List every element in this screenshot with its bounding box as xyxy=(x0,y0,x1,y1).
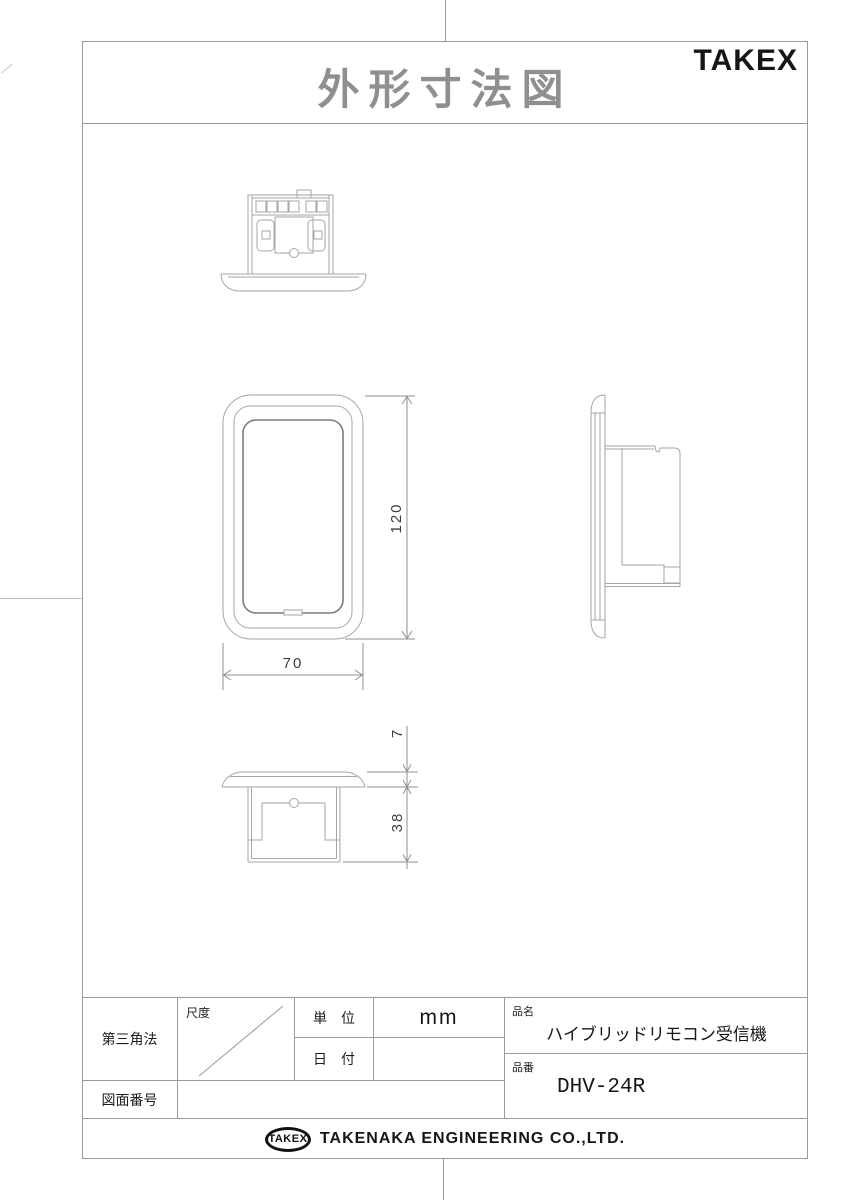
dimension-height: 120 xyxy=(345,396,415,639)
footer-band: TAKEX TAKENAKA ENGINEERING CO.,LTD. xyxy=(82,1118,808,1159)
part-no-cell: 品番 DHV-24R xyxy=(505,1054,808,1119)
product-name-cell: 品名 ハイブリッドリモコン受信機 xyxy=(505,998,808,1054)
dimension-depths: 7 38 xyxy=(343,726,418,869)
terminal-strip xyxy=(252,190,329,215)
dim-label-120: 120 xyxy=(388,502,405,533)
crop-mark-left xyxy=(0,598,82,599)
chassis-outline xyxy=(275,217,313,253)
part-no-label: 品番 xyxy=(512,1059,534,1075)
drawing-no-value-cell xyxy=(178,1080,505,1119)
front-view xyxy=(223,395,363,639)
side-view xyxy=(591,395,680,638)
mounting-ears xyxy=(257,220,325,251)
bottom-view xyxy=(222,772,365,862)
screw-hole xyxy=(290,249,299,258)
corner-tick xyxy=(1,64,12,74)
dim-label-7: 7 xyxy=(389,728,406,738)
scale-diagonal-line xyxy=(178,998,295,1080)
front-window xyxy=(243,420,343,613)
bottom-body xyxy=(248,787,340,862)
part-no-value: DHV-24R xyxy=(557,1076,645,1099)
title-block-table: 第三角法 尺度 単 位 mm 日 付 図面番号 品名 ハイブリッドリモコン受信機… xyxy=(82,997,808,1118)
top-flange xyxy=(221,274,366,291)
date-value-cell xyxy=(374,1038,505,1080)
date-label-cell: 日 付 xyxy=(295,1038,374,1080)
unit-label-cell: 単 位 xyxy=(295,998,374,1038)
front-notch xyxy=(284,610,302,615)
product-name-label: 品名 xyxy=(512,1003,534,1019)
brand-logo-text: TAKEX xyxy=(640,44,798,78)
projection-cell: 第三角法 xyxy=(82,998,178,1080)
dimension-drawing: 120 70 xyxy=(82,124,808,997)
scale-cell: 尺度 xyxy=(178,998,295,1080)
company-name: TAKENAKA ENGINEERING CO.,LTD. xyxy=(320,1130,625,1148)
top-view xyxy=(221,190,366,291)
bottom-flange xyxy=(222,772,365,787)
dim-label-38: 38 xyxy=(389,812,406,833)
dimension-width: 70 xyxy=(223,643,363,690)
dim-label-70: 70 xyxy=(283,655,304,672)
side-faceplate xyxy=(591,395,605,638)
screw-hole-bottom xyxy=(290,799,299,808)
drawing-no-label-cell: 図面番号 xyxy=(82,1080,178,1119)
product-name-value: ハイブリッドリモコン受信機 xyxy=(505,1020,808,1045)
unit-value-cell: mm xyxy=(374,998,505,1038)
crop-mark-top xyxy=(445,0,446,41)
takex-oval-logo: TAKEX xyxy=(265,1127,311,1152)
crop-mark-bottom xyxy=(443,1159,444,1200)
side-body xyxy=(605,446,680,587)
